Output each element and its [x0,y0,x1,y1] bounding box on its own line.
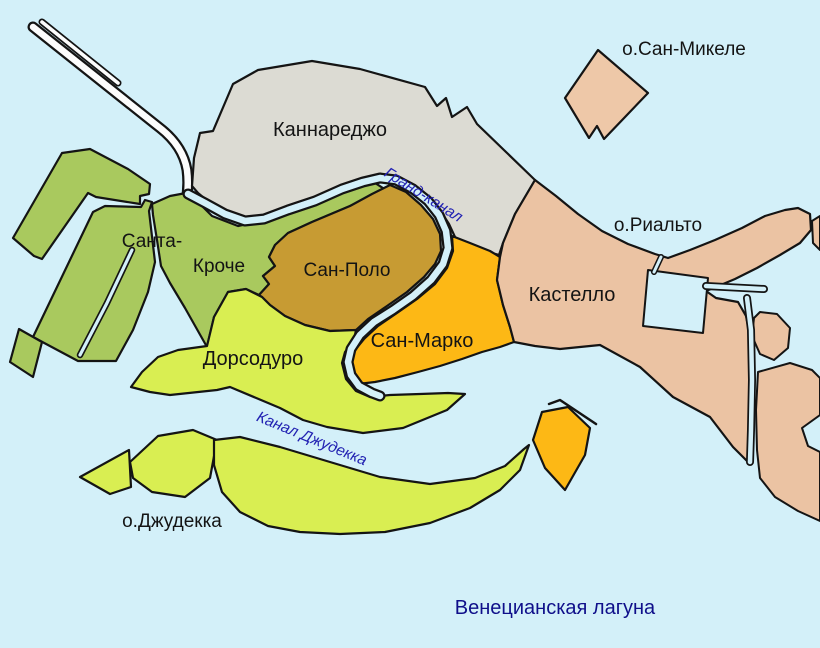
label-castello: Кастелло [529,284,616,306]
label-san-michele: о.Сан-Микеле [622,39,746,60]
castello-channel-ew [706,286,764,289]
map-canvas: Каннареджо о.Сан-Микеле о.Риальто Санта-… [0,0,820,648]
label-lagoon: Венецианская лагуна [455,597,656,619]
label-giudecca: о.Джудекка [122,511,222,532]
arsenale-basin [643,270,708,333]
venice-districts-map: Каннареджо о.Сан-Микеле о.Риальто Санта-… [0,0,820,648]
label-san-marco: Сан-Марко [371,330,474,352]
label-dorsoduro: Дорсодуро [203,348,304,370]
label-cannaregio: Каннареджо [273,119,387,141]
label-san-polo: Сан-Поло [304,260,391,281]
label-rialto: о.Риальто [614,215,702,236]
label-santa-croce-line2: Кроче [193,256,245,277]
label-santa-croce-line1: Санта- [122,231,182,252]
